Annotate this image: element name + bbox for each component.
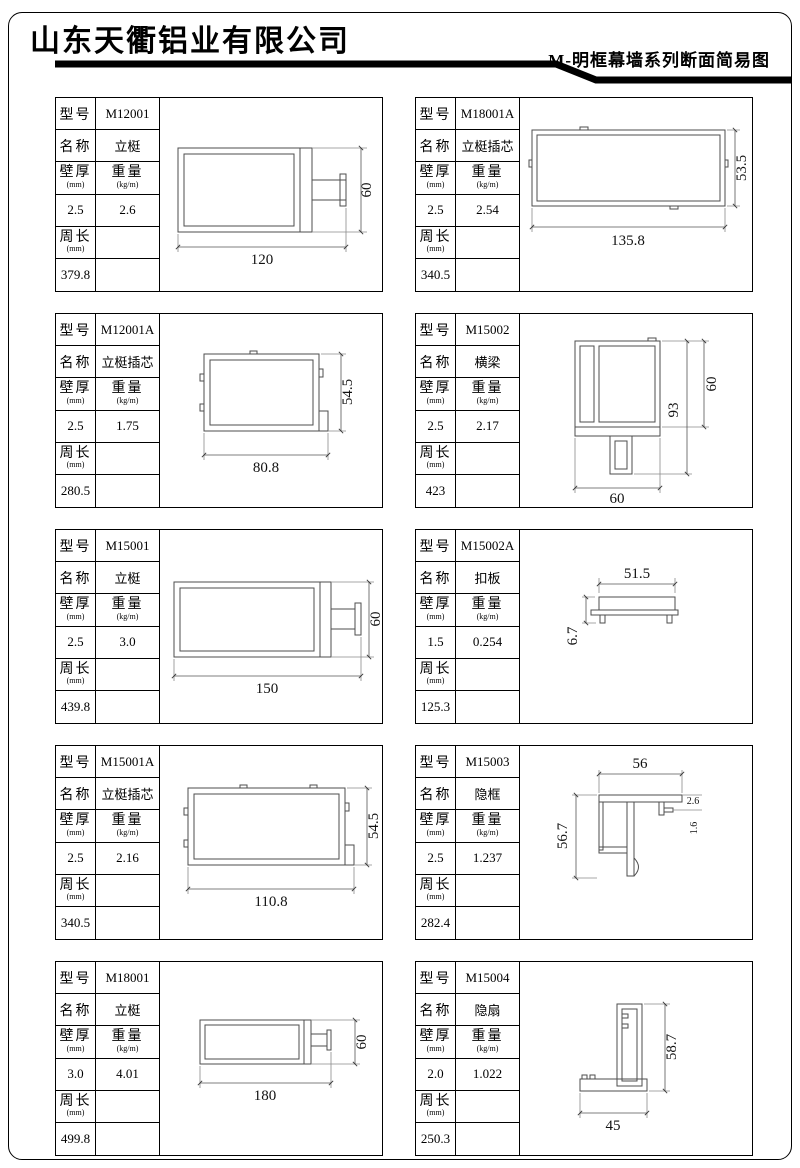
profile-cell-m18001a: 型号 M18001A 名称 立梃插芯 壁厚(mm) 重量(kg/m) 2.5 2… (415, 97, 753, 292)
model-value: M15003 (456, 746, 519, 778)
model-label: 型号 (416, 962, 456, 994)
model-value: M18001A (456, 98, 519, 130)
empty-cell (96, 443, 159, 475)
name-label: 名称 (56, 562, 96, 594)
weight-label: 重量(kg/m) (96, 162, 159, 194)
model-label: 型号 (56, 746, 96, 778)
wall-label: 壁厚(mm) (56, 162, 96, 194)
profile-grid: 型号 M12001 名称 立梃 壁厚(mm) 重量(kg/m) 2.5 2.6 … (55, 97, 753, 1156)
cross-section-drawing: 135.8 53.5 (520, 98, 752, 291)
name-label: 名称 (416, 994, 456, 1026)
dim-height-label: 6.7 (565, 626, 581, 645)
cross-section-drawing: 150 60 (160, 530, 382, 723)
perimeter-value: 423 (416, 475, 456, 507)
weight-label: 重量(kg/m) (96, 1026, 159, 1058)
wall-label: 壁厚(mm) (416, 810, 456, 842)
empty-cell (96, 227, 159, 259)
perimeter-label: 周长(mm) (416, 1091, 456, 1123)
profile-cell-m18001: 型号 M18001 名称 立梃 壁厚(mm) 重量(kg/m) 3.0 4.01… (55, 961, 383, 1156)
perimeter-value: 340.5 (56, 907, 96, 939)
weight-value: 1.75 (96, 411, 159, 443)
profile-cell-m15001a: 型号 M15001A 名称 立梃插芯 壁厚(mm) 重量(kg/m) 2.5 2… (55, 745, 383, 940)
empty-cell (456, 907, 519, 939)
empty-cell (456, 227, 519, 259)
cross-section-drawing: 80.8 54.5 (160, 314, 382, 507)
model-label: 型号 (56, 530, 96, 562)
wall-value: 3.0 (56, 1059, 96, 1091)
model-label: 型号 (416, 98, 456, 130)
dim-width-label: 80.8 (253, 460, 279, 476)
empty-cell (96, 1091, 159, 1123)
weight-value: 4.01 (96, 1059, 159, 1091)
model-value: M12001A (96, 314, 159, 346)
perimeter-value: 250.3 (416, 1123, 456, 1155)
name-value: 立梃插芯 (96, 346, 159, 378)
weight-label: 重量(kg/m) (456, 378, 519, 410)
empty-cell (456, 259, 519, 291)
empty-cell (456, 443, 519, 475)
dim-height-label: 54.5 (340, 379, 356, 405)
wall-value: 2.5 (56, 627, 96, 659)
perimeter-label: 周长(mm) (416, 659, 456, 691)
model-label: 型号 (56, 962, 96, 994)
perimeter-label: 周长(mm) (416, 227, 456, 259)
weight-value: 2.54 (456, 195, 519, 227)
wall-label: 壁厚(mm) (416, 378, 456, 410)
profile-cell-m12001: 型号 M12001 名称 立梃 壁厚(mm) 重量(kg/m) 2.5 2.6 … (55, 97, 383, 292)
cross-section-drawing: 51.5 6.7 (520, 530, 752, 723)
weight-value: 2.6 (96, 195, 159, 227)
empty-cell (456, 1123, 519, 1155)
empty-cell (96, 1123, 159, 1155)
model-value: M18001 (96, 962, 159, 994)
dim-height-label: 54.5 (366, 813, 382, 839)
company-title: 山东天衢铝业有限公司 (30, 16, 350, 60)
name-label: 名称 (56, 346, 96, 378)
model-value: M15001A (96, 746, 159, 778)
wall-value: 1.5 (416, 627, 456, 659)
name-label: 名称 (416, 562, 456, 594)
wall-value: 2.0 (416, 1059, 456, 1091)
weight-value: 2.16 (96, 843, 159, 875)
spec-table: 型号 M18001 名称 立梃 壁厚(mm) 重量(kg/m) 3.0 4.01… (56, 962, 160, 1155)
wall-label: 壁厚(mm) (56, 594, 96, 626)
empty-cell (456, 659, 519, 691)
name-label: 名称 (56, 994, 96, 1026)
empty-cell (456, 1091, 519, 1123)
dim-upper-height-label: 60 (704, 377, 720, 392)
wall-value: 2.5 (56, 843, 96, 875)
profile-cell-m15002a: 型号 M15002A 名称 扣板 壁厚(mm) 重量(kg/m) 1.5 0.2… (415, 529, 753, 724)
name-value: 隐扇 (456, 994, 519, 1026)
name-label: 名称 (56, 778, 96, 810)
model-label: 型号 (416, 314, 456, 346)
dim-height-label: 60 (354, 1035, 370, 1050)
perimeter-label: 周长(mm) (56, 443, 96, 475)
name-value: 横梁 (456, 346, 519, 378)
perimeter-value: 439.8 (56, 691, 96, 723)
weight-label: 重量(kg/m) (96, 810, 159, 842)
empty-cell (456, 691, 519, 723)
name-value: 立梃插芯 (96, 778, 159, 810)
cross-section-drawing: 110.8 54.5 (160, 746, 382, 939)
wall-label: 壁厚(mm) (56, 810, 96, 842)
dim-width-label: 45 (606, 1118, 621, 1134)
dim-height-label: 60 (368, 612, 383, 627)
perimeter-label: 周长(mm) (56, 1091, 96, 1123)
perimeter-value: 340.5 (416, 259, 456, 291)
perimeter-label: 周长(mm) (56, 659, 96, 691)
perimeter-value: 379.8 (56, 259, 96, 291)
dim-width-label: 110.8 (254, 894, 287, 910)
dim-height-label: 53.5 (734, 155, 750, 181)
dim-height-label: 58.7 (664, 1033, 680, 1060)
wall-value: 2.5 (416, 843, 456, 875)
dim-small-1-label: 2.6 (687, 796, 700, 807)
model-value: M15001 (96, 530, 159, 562)
wall-value: 2.5 (56, 411, 96, 443)
dim-height-label: 56.7 (555, 822, 571, 849)
cross-section-drawing: 56 56.7 2.6 1.6 (520, 746, 752, 939)
perimeter-value: 125.3 (416, 691, 456, 723)
profile-cell-m15003: 型号 M15003 名称 隐框 壁厚(mm) 重量(kg/m) 2.5 1.23… (415, 745, 753, 940)
empty-cell (456, 475, 519, 507)
spec-table: 型号 M15001 名称 立梃 壁厚(mm) 重量(kg/m) 2.5 3.0 … (56, 530, 160, 723)
empty-cell (96, 907, 159, 939)
model-label: 型号 (56, 98, 96, 130)
dim-height-label: 60 (359, 183, 375, 198)
profile-cell-m12001a: 型号 M12001A 名称 立梃插芯 壁厚(mm) 重量(kg/m) 2.5 1… (55, 313, 383, 508)
perimeter-value: 499.8 (56, 1123, 96, 1155)
spec-table: 型号 M12001A 名称 立梃插芯 壁厚(mm) 重量(kg/m) 2.5 1… (56, 314, 160, 507)
model-label: 型号 (56, 314, 96, 346)
spec-table: 型号 M15001A 名称 立梃插芯 壁厚(mm) 重量(kg/m) 2.5 2… (56, 746, 160, 939)
model-label: 型号 (416, 746, 456, 778)
perimeter-label: 周长(mm) (416, 875, 456, 907)
name-value: 扣板 (456, 562, 519, 594)
header-rule (0, 58, 800, 86)
weight-value: 1.022 (456, 1059, 519, 1091)
cross-section-drawing: 120 60 (160, 98, 382, 291)
weight-label: 重量(kg/m) (96, 594, 159, 626)
weight-value: 1.237 (456, 843, 519, 875)
weight-label: 重量(kg/m) (456, 810, 519, 842)
perimeter-label: 周长(mm) (56, 227, 96, 259)
name-label: 名称 (416, 130, 456, 162)
dim-width-label: 56 (633, 756, 649, 772)
name-value: 立梃 (96, 994, 159, 1026)
empty-cell (96, 875, 159, 907)
cross-section-drawing: 180 60 (160, 962, 382, 1155)
profile-cell-m15001: 型号 M15001 名称 立梃 壁厚(mm) 重量(kg/m) 2.5 3.0 … (55, 529, 383, 724)
dim-width-label: 135.8 (611, 233, 645, 249)
perimeter-value: 282.4 (416, 907, 456, 939)
model-value: M12001 (96, 98, 159, 130)
wall-label: 壁厚(mm) (416, 1026, 456, 1058)
dim-small-2-label: 1.6 (689, 822, 700, 835)
weight-label: 重量(kg/m) (456, 1026, 519, 1058)
model-value: M15002A (456, 530, 519, 562)
name-label: 名称 (416, 346, 456, 378)
weight-label: 重量(kg/m) (456, 594, 519, 626)
weight-value: 0.254 (456, 627, 519, 659)
name-label: 名称 (416, 778, 456, 810)
empty-cell (96, 691, 159, 723)
name-label: 名称 (56, 130, 96, 162)
model-value: M15002 (456, 314, 519, 346)
perimeter-label: 周长(mm) (416, 443, 456, 475)
spec-table: 型号 M15003 名称 隐框 壁厚(mm) 重量(kg/m) 2.5 1.23… (416, 746, 520, 939)
model-label: 型号 (416, 530, 456, 562)
wall-value: 2.5 (416, 411, 456, 443)
cross-section-drawing: 93 60 60 (520, 314, 752, 507)
name-value: 立梃插芯 (456, 130, 519, 162)
wall-label: 壁厚(mm) (416, 594, 456, 626)
wall-label: 壁厚(mm) (56, 378, 96, 410)
perimeter-value: 280.5 (56, 475, 96, 507)
spec-table: 型号 M18001A 名称 立梃插芯 壁厚(mm) 重量(kg/m) 2.5 2… (416, 98, 520, 291)
empty-cell (96, 259, 159, 291)
profile-cell-m15002: 型号 M15002 名称 横梁 壁厚(mm) 重量(kg/m) 2.5 2.17… (415, 313, 753, 508)
name-value: 立梃 (96, 130, 159, 162)
profile-cell-m15004: 型号 M15004 名称 隐扇 壁厚(mm) 重量(kg/m) 2.0 1.02… (415, 961, 753, 1156)
spec-table: 型号 M15004 名称 隐扇 壁厚(mm) 重量(kg/m) 2.0 1.02… (416, 962, 520, 1155)
weight-label: 重量(kg/m) (96, 378, 159, 410)
cross-section-drawing: 58.7 45 (520, 962, 752, 1155)
wall-value: 2.5 (416, 195, 456, 227)
dim-width-label: 51.5 (624, 566, 650, 582)
spec-table: 型号 M12001 名称 立梃 壁厚(mm) 重量(kg/m) 2.5 2.6 … (56, 98, 160, 291)
empty-cell (96, 659, 159, 691)
spec-table: 型号 M15002 名称 横梁 壁厚(mm) 重量(kg/m) 2.5 2.17… (416, 314, 520, 507)
dim-width-label: 150 (256, 681, 279, 697)
empty-cell (96, 475, 159, 507)
dim-width-label: 180 (254, 1088, 277, 1104)
weight-value: 2.17 (456, 411, 519, 443)
wall-label: 壁厚(mm) (416, 162, 456, 194)
dim-width-label: 60 (610, 491, 625, 507)
name-value: 隐框 (456, 778, 519, 810)
dim-total-height-label: 93 (666, 403, 682, 418)
weight-value: 3.0 (96, 627, 159, 659)
dim-width-label: 120 (251, 252, 274, 268)
weight-label: 重量(kg/m) (456, 162, 519, 194)
wall-label: 壁厚(mm) (56, 1026, 96, 1058)
empty-cell (456, 875, 519, 907)
model-value: M15004 (456, 962, 519, 994)
perimeter-label: 周长(mm) (56, 875, 96, 907)
name-value: 立梃 (96, 562, 159, 594)
spec-table: 型号 M15002A 名称 扣板 壁厚(mm) 重量(kg/m) 1.5 0.2… (416, 530, 520, 723)
wall-value: 2.5 (56, 195, 96, 227)
